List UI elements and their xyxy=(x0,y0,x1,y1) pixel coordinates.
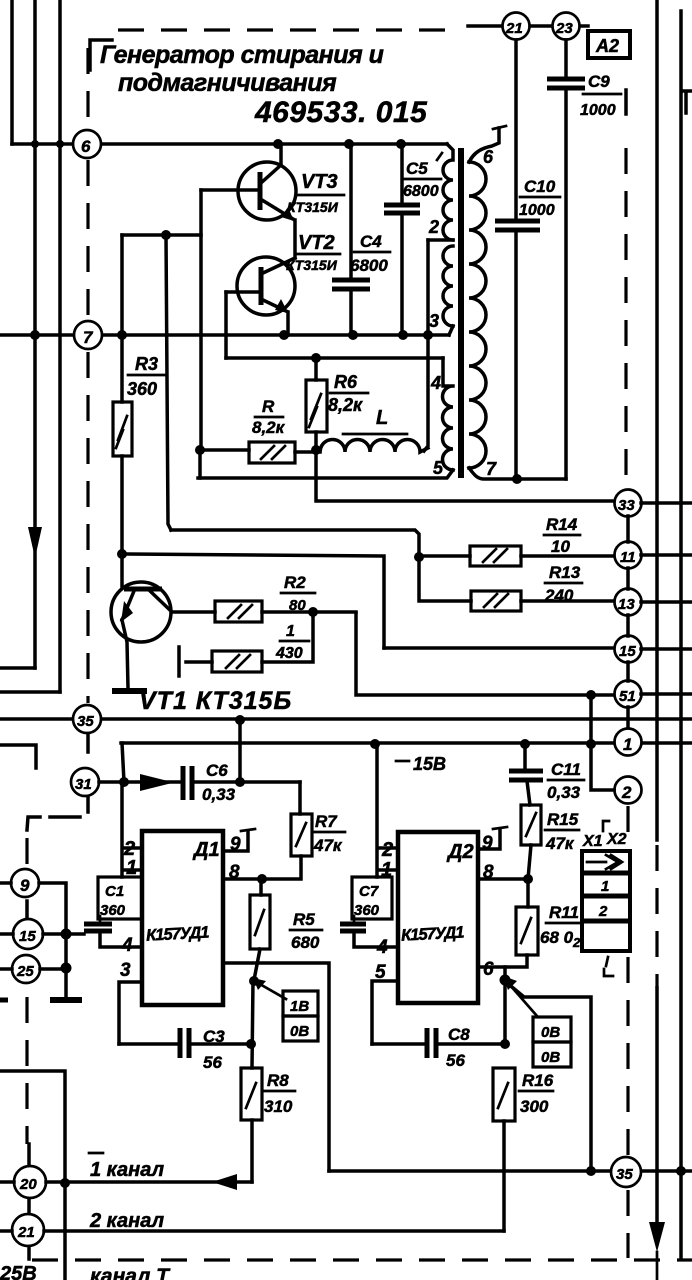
svg-text:Д2: Д2 xyxy=(446,841,474,863)
svg-text:2: 2 xyxy=(572,935,581,950)
svg-text:Д1: Д1 xyxy=(192,839,220,861)
svg-text:21: 21 xyxy=(17,1224,35,1241)
svg-text:К157УД1: К157УД1 xyxy=(146,923,210,944)
svg-text:4: 4 xyxy=(430,373,441,393)
svg-text:С9: С9 xyxy=(588,72,610,91)
svg-text:0В: 0В xyxy=(541,1049,560,1066)
svg-text:С1: С1 xyxy=(105,883,124,900)
svg-text:469533. 015: 469533. 015 xyxy=(254,96,428,129)
svg-text:2: 2 xyxy=(598,903,608,920)
svg-text:2: 2 xyxy=(381,839,393,861)
svg-text:680: 680 xyxy=(291,933,320,952)
svg-text:С8: С8 xyxy=(448,1025,470,1044)
svg-text:С10: С10 xyxy=(524,177,556,196)
svg-text:R5: R5 xyxy=(293,910,315,929)
svg-text:25: 25 xyxy=(16,963,34,980)
svg-text:С4: С4 xyxy=(360,232,382,251)
svg-text:15: 15 xyxy=(619,643,636,660)
svg-text:Х1: Х1 xyxy=(582,833,603,850)
svg-text:R11: R11 xyxy=(549,903,579,922)
svg-text:8,2к: 8,2к xyxy=(252,418,286,437)
svg-text:R2: R2 xyxy=(284,573,306,592)
svg-text:300: 300 xyxy=(520,1097,549,1116)
svg-text:47к: 47к xyxy=(313,836,343,855)
svg-text:6: 6 xyxy=(483,959,494,980)
svg-text:56: 56 xyxy=(203,1053,222,1072)
svg-text:R16: R16 xyxy=(522,1071,554,1090)
svg-text:А2: А2 xyxy=(595,36,619,56)
svg-text:VT1 КТ315Б: VT1 КТ315Б xyxy=(139,687,292,715)
svg-text:35: 35 xyxy=(616,1166,633,1183)
svg-text:С7: С7 xyxy=(359,883,379,900)
svg-text:430: 430 xyxy=(275,645,303,662)
svg-text:13: 13 xyxy=(618,596,635,613)
svg-text:35: 35 xyxy=(77,713,94,730)
svg-text:1 канал: 1 канал xyxy=(90,1159,165,1181)
svg-text:R8: R8 xyxy=(267,1071,289,1090)
svg-text:23: 23 xyxy=(555,20,573,37)
svg-text:68 0: 68 0 xyxy=(540,928,574,947)
svg-text:канал Т: канал Т xyxy=(90,1265,171,1280)
svg-text:VT3: VT3 xyxy=(301,171,338,193)
svg-text:С5: С5 xyxy=(406,159,428,178)
svg-text:R6: R6 xyxy=(334,372,358,392)
svg-text:8,2к: 8,2к xyxy=(328,395,363,415)
svg-text:51: 51 xyxy=(619,688,636,705)
svg-text:3: 3 xyxy=(120,960,131,981)
svg-text:0В: 0В xyxy=(290,1023,309,1040)
svg-text:1: 1 xyxy=(601,878,609,895)
svg-text:7: 7 xyxy=(486,459,497,479)
svg-text:К157УД1: К157УД1 xyxy=(401,923,465,944)
svg-text:С3: С3 xyxy=(203,1027,225,1046)
svg-text:1000: 1000 xyxy=(580,102,616,119)
svg-text:9: 9 xyxy=(20,876,30,895)
svg-text:1000: 1000 xyxy=(519,202,555,219)
svg-text:подмагничивания: подмагничивания xyxy=(118,69,337,97)
svg-text:360: 360 xyxy=(354,902,380,919)
svg-text:Генератор стирания и: Генератор стирания и xyxy=(100,41,384,69)
svg-text:47к: 47к xyxy=(545,834,575,853)
svg-text:L: L xyxy=(376,407,388,429)
svg-text:1В: 1В xyxy=(290,998,309,1015)
svg-text:15: 15 xyxy=(19,928,36,945)
svg-text:0,33: 0,33 xyxy=(547,783,581,802)
svg-text:360: 360 xyxy=(100,902,126,919)
svg-text:2 канал: 2 канал xyxy=(89,1210,165,1232)
svg-text:R3: R3 xyxy=(135,354,158,374)
svg-text:R15: R15 xyxy=(547,810,579,829)
svg-text:15В: 15В xyxy=(413,754,446,774)
svg-text:6: 6 xyxy=(81,137,91,156)
svg-text:0В: 0В xyxy=(541,1024,560,1041)
svg-text:R13: R13 xyxy=(549,563,581,582)
svg-text:КТ315И: КТ315И xyxy=(286,257,338,273)
svg-text:С11: С11 xyxy=(551,760,581,779)
svg-text:56: 56 xyxy=(446,1051,465,1070)
svg-text:0,33: 0,33 xyxy=(202,785,236,804)
svg-text:R14: R14 xyxy=(546,515,578,534)
svg-text:10: 10 xyxy=(551,537,570,556)
svg-text:3: 3 xyxy=(429,311,439,331)
svg-text:7: 7 xyxy=(83,328,94,347)
svg-text:310: 310 xyxy=(264,1097,293,1116)
svg-text:2: 2 xyxy=(428,217,439,237)
svg-text:5: 5 xyxy=(433,458,444,478)
svg-text:31: 31 xyxy=(75,776,92,793)
svg-text:С6: С6 xyxy=(206,761,228,780)
svg-text:360: 360 xyxy=(127,379,157,399)
svg-text:R: R xyxy=(262,397,275,416)
svg-text:1: 1 xyxy=(623,735,632,754)
svg-text:11: 11 xyxy=(620,549,636,566)
svg-text:1: 1 xyxy=(286,623,295,640)
svg-text:6800: 6800 xyxy=(403,183,439,200)
svg-text:Х2: Х2 xyxy=(606,831,627,848)
svg-text:R7: R7 xyxy=(315,812,338,831)
svg-text:9: 9 xyxy=(482,833,493,854)
svg-text:6800: 6800 xyxy=(350,256,388,275)
svg-text:33: 33 xyxy=(618,497,635,514)
svg-text:КТ315И: КТ315И xyxy=(287,199,339,215)
svg-text:VT2: VT2 xyxy=(298,232,335,254)
svg-text:25В: 25В xyxy=(0,1263,37,1280)
svg-text:21: 21 xyxy=(505,20,523,37)
svg-text:2: 2 xyxy=(621,783,632,802)
svg-text:20: 20 xyxy=(19,1176,37,1193)
